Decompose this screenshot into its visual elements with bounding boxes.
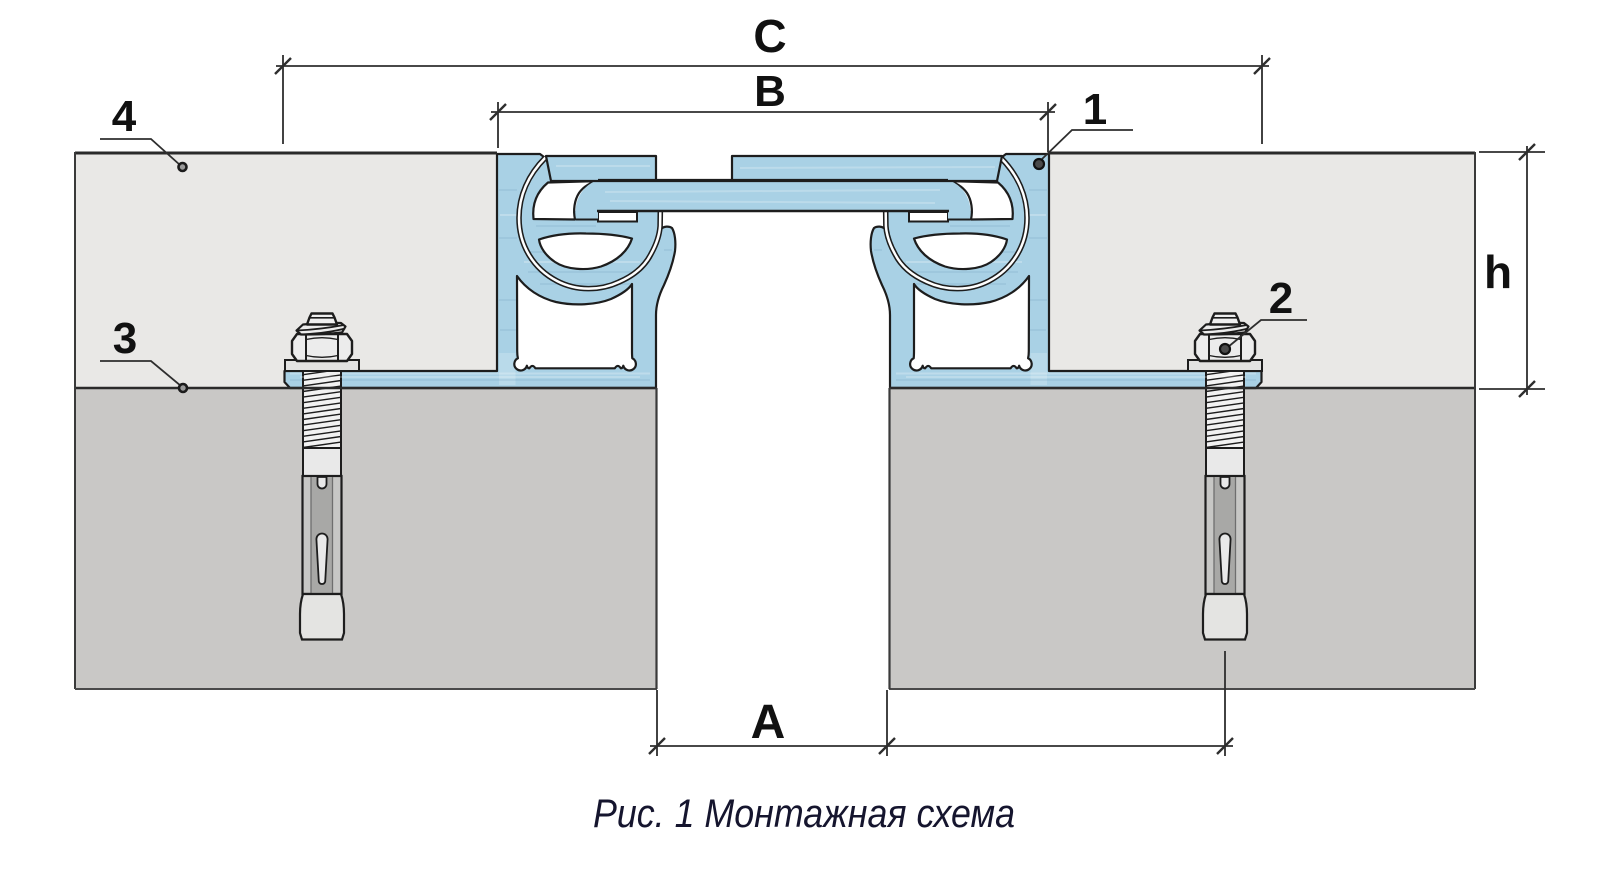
- svg-text:A: A: [751, 696, 786, 749]
- svg-text:C: C: [753, 10, 786, 62]
- svg-text:Рис. 1 Монтажная схема: Рис. 1 Монтажная схема: [593, 792, 1015, 836]
- svg-text:3: 3: [113, 314, 137, 363]
- svg-text:B: B: [754, 67, 786, 116]
- svg-text:2: 2: [1269, 274, 1293, 323]
- svg-text:1: 1: [1083, 85, 1107, 134]
- svg-text:h: h: [1484, 246, 1512, 298]
- svg-text:4: 4: [112, 92, 137, 141]
